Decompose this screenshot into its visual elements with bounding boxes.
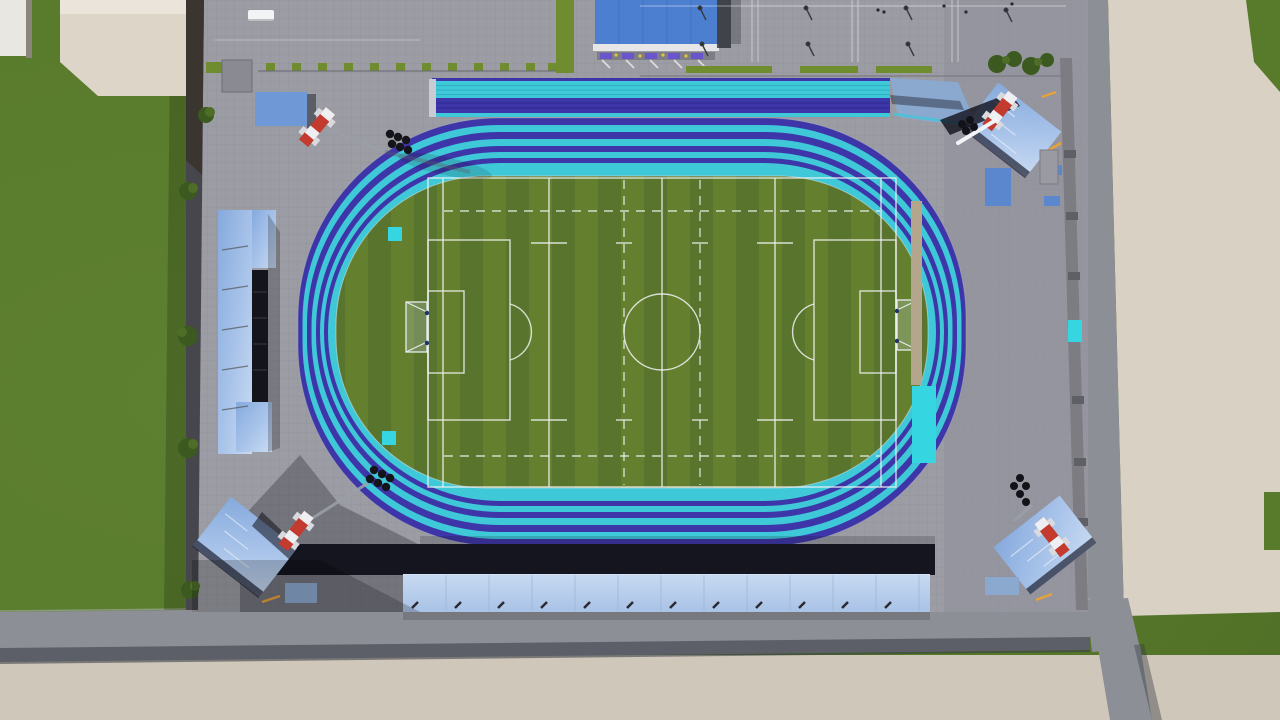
northeast-stand-panel xyxy=(985,168,1011,206)
east-building-slab xyxy=(1108,0,1280,616)
warmup-start-block xyxy=(429,79,436,117)
entrance-flower-boxes xyxy=(597,52,715,60)
cyan-mat-north xyxy=(388,227,402,241)
longjump-runway xyxy=(911,201,922,385)
west-stand-south-wing xyxy=(236,402,272,452)
cyan-mat-south xyxy=(382,431,396,445)
infield xyxy=(336,176,936,488)
west-stand-seating-dark xyxy=(252,270,268,402)
landing-pit xyxy=(912,386,936,463)
entrance-shadow xyxy=(717,0,731,48)
east-wall-cyan-ramp xyxy=(1068,320,1082,342)
northwest-building-top-face xyxy=(60,0,188,14)
ticket-booth xyxy=(222,60,252,92)
south-stand-seating-shadow xyxy=(256,544,935,575)
southeast-stand-booth xyxy=(985,577,1019,595)
east-bench-2 xyxy=(1044,196,1060,206)
far-west-building xyxy=(0,0,28,56)
south-stand-roof xyxy=(403,574,930,612)
south-pavement xyxy=(0,655,1280,720)
tree xyxy=(178,438,198,458)
west-stand-shadow xyxy=(268,214,280,452)
far-west-building-edge xyxy=(26,0,32,58)
south-roof-shadow xyxy=(403,612,930,620)
goal-left xyxy=(406,302,429,352)
hedge-strip-north-1 xyxy=(556,0,574,73)
white-van xyxy=(248,10,274,22)
entrance-shadow-soft xyxy=(731,0,741,44)
northwest-canopy xyxy=(255,92,307,126)
northwest-building-dark-side xyxy=(186,0,204,175)
west-grandstand xyxy=(218,210,280,454)
east-grass-patch xyxy=(1264,492,1280,550)
northeast-steps xyxy=(1040,150,1058,184)
stadium-aerial-render xyxy=(0,0,1280,720)
